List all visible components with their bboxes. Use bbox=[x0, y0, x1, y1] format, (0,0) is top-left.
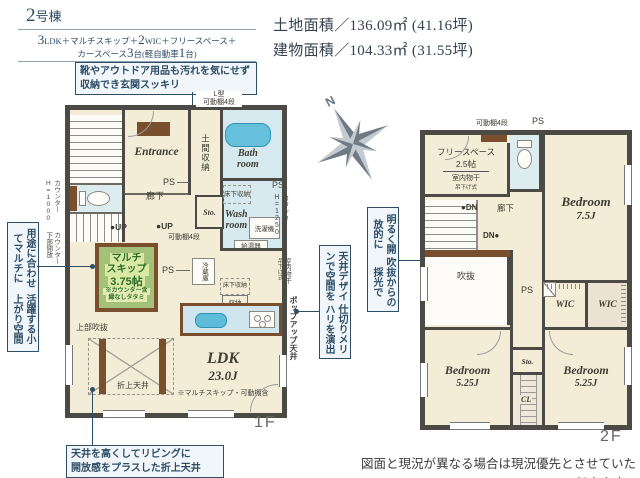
void-label: 吹抜 bbox=[455, 269, 477, 282]
l-shelf-line2: 可動棚4段 bbox=[196, 99, 242, 107]
callout-multi-use: 用途に合わせてマルチに 活躍する小上がり空間 bbox=[7, 222, 39, 352]
dn-label-1: ●DN bbox=[461, 203, 477, 212]
callout-coffered-line1: 天井を高くしてリビングに bbox=[71, 448, 219, 462]
bath-label-2: room bbox=[237, 159, 259, 170]
area-block: 土地面積／136.09㎡ (41.16坪) 建物面積／104.33㎡ (31.5… bbox=[273, 14, 473, 64]
shelf-2f bbox=[481, 135, 507, 142]
callout-daylight: 明るく開放的に 吹抜からの採光で bbox=[367, 207, 399, 312]
free-space-room: フリースペース 2.5帖 室内物干 吊下げ式 bbox=[425, 143, 510, 197]
wic-1: WIC bbox=[545, 283, 585, 327]
callout-coffered-line2: 開放感をプラスした折上天井 bbox=[71, 462, 219, 476]
underfloor-storage-2: 床下収納 bbox=[220, 278, 250, 295]
wall bbox=[70, 212, 122, 214]
window bbox=[624, 165, 632, 205]
window bbox=[420, 267, 428, 301]
window bbox=[65, 345, 73, 385]
compass-star bbox=[305, 89, 401, 198]
bath-label-1: Bath bbox=[237, 148, 259, 159]
multi-skip-label-1: マルチ bbox=[110, 253, 144, 265]
multi-skip-size: 3.75帖 bbox=[108, 276, 144, 289]
floor-plan-1f: Entrance 土間収納 Bath room Wash room 洗濯機 bbox=[65, 105, 287, 418]
closet-cl: CL bbox=[513, 375, 542, 425]
layout-line-2: カースペース3台(軽自動車1台) bbox=[14, 45, 260, 61]
ps-2f-label: PS bbox=[521, 285, 533, 295]
free-space-size: 2.5帖 bbox=[456, 158, 476, 170]
bath-room: Bath room bbox=[223, 110, 282, 178]
bedroom-3-label: Bedroom bbox=[563, 363, 608, 378]
counter-h1250-value: H=1250 bbox=[272, 194, 280, 256]
toilet-room-1f bbox=[70, 185, 122, 212]
counter-h1000-label: カウンター H=1000 bbox=[44, 180, 60, 230]
window bbox=[450, 422, 490, 430]
callout-multi-connector bbox=[37, 266, 92, 267]
multi-skip-note-2: 縁なしタタミ bbox=[106, 295, 146, 302]
wic-1-label: WIC bbox=[556, 300, 574, 310]
building-number-suffix: 号棟 bbox=[36, 9, 62, 24]
layout-text-5: 台) bbox=[185, 49, 196, 59]
ps-1f-upper-label: PS bbox=[163, 177, 175, 187]
counter-h1250-label: カウンター H=1250 bbox=[272, 194, 289, 256]
popup-ceiling-text: ポップアップ天井 bbox=[288, 296, 299, 366]
hallway-2f-label: 廊下 bbox=[497, 202, 514, 214]
storage-sto-2f: Sto. bbox=[513, 350, 542, 372]
shelf-2f-label: 可動棚4段 bbox=[476, 118, 508, 128]
bathtub-icon bbox=[225, 123, 271, 147]
wash-label-1: Wash bbox=[225, 209, 248, 220]
toilet-room-2f bbox=[510, 135, 542, 192]
popup-connector bbox=[299, 311, 319, 312]
counter-open-word: カウンター bbox=[52, 232, 60, 282]
ps-leader-line-2 bbox=[176, 270, 190, 271]
bedroom-2-size: 5.25J bbox=[456, 378, 479, 389]
underfloor-storage-2-label: 床下収納 bbox=[223, 283, 247, 290]
wash-room-label: Wash room bbox=[225, 209, 248, 231]
counter-h1000-word: カウンター bbox=[52, 180, 60, 230]
compass-north-label: N bbox=[323, 93, 338, 110]
callout-coffered-connector bbox=[92, 390, 93, 445]
toilet-tank-icon-2f bbox=[517, 140, 532, 148]
bedroom-3-size: 5.25J bbox=[575, 378, 598, 389]
multi-skip-label-2: スキップ bbox=[105, 264, 149, 276]
underfloor-storage-1-label: 床下収納 bbox=[224, 191, 250, 198]
toilet-bowl-icon bbox=[87, 191, 110, 206]
layout-text-4: 台(軽自動車 bbox=[133, 49, 178, 59]
ldk-size: 23.0J bbox=[177, 368, 269, 384]
building-number: 2号棟 bbox=[26, 5, 62, 27]
stairs-1f-upper bbox=[70, 115, 122, 183]
wic-2: WIC bbox=[588, 283, 627, 327]
bath-room-label: Bath room bbox=[237, 148, 259, 170]
ps-1f-lower-label: PS bbox=[162, 265, 174, 275]
callout-coffered-dot bbox=[90, 387, 95, 392]
hanger-rail bbox=[621, 285, 626, 325]
window bbox=[420, 363, 428, 397]
callout-coffered: 天井を高くしてリビングに 開放感をプラスした折上天井 bbox=[66, 445, 224, 478]
window bbox=[188, 410, 234, 418]
refrigerator: 冷蔵庫 bbox=[192, 258, 215, 285]
floor-plan-2f: フリースペース 2.5帖 室内物干 吊下げ式 Bedroom 7.5J ●DN … bbox=[420, 130, 632, 430]
compass-rose: N bbox=[305, 88, 401, 200]
upper-void-label: 上部吹抜 bbox=[76, 322, 108, 333]
kitchen-counter bbox=[180, 303, 282, 336]
doma-storage-room: 土間収納 bbox=[191, 114, 220, 192]
window bbox=[558, 422, 604, 430]
toilet-bowl-icon-2f bbox=[517, 149, 532, 169]
free-space-rule bbox=[443, 171, 489, 172]
hanger-rail bbox=[547, 284, 583, 289]
stove bbox=[249, 311, 275, 328]
l-shelf-label: L型 可動棚4段 bbox=[196, 91, 242, 107]
underfloor-storage-1: 床下収納 bbox=[223, 185, 251, 204]
callout-multi-dot bbox=[90, 264, 95, 269]
callout-multi-col2: 活躍する小上がり空間 bbox=[10, 290, 36, 348]
bedroom-1: Bedroom 7.5J bbox=[545, 135, 627, 280]
stove-burner bbox=[264, 315, 271, 322]
ldk-room: LDK 23.0J ※マルチスキップ・可動棚含 bbox=[177, 350, 269, 398]
callout-daylight-col1: 明るく開放的に bbox=[370, 211, 396, 256]
up-arrow-1: ●UP bbox=[110, 222, 127, 232]
counter-h1250-word: カウンター bbox=[280, 194, 288, 256]
dn-label-2: DN● bbox=[483, 231, 499, 240]
hanging-type-word: 吊下げ式 bbox=[276, 258, 283, 306]
window bbox=[103, 410, 145, 418]
l-shelf-line1: L型 bbox=[196, 91, 242, 99]
shelf-4tier-1f-label: 可動棚4段 bbox=[168, 232, 200, 242]
disclaimer: 図面と現況が異なる場合は現況優先とさせていただきます。 bbox=[352, 453, 636, 478]
sto-2f-label: Sto. bbox=[522, 357, 534, 366]
counter-open-value: 下部開放 bbox=[44, 232, 52, 282]
entrance-label: Entrance bbox=[134, 146, 178, 158]
popup-ceiling-label: ポップアップ天井 bbox=[288, 296, 299, 366]
storage-sto-1f: Sto. bbox=[195, 195, 224, 229]
building-number-digit: 2 bbox=[26, 5, 36, 26]
free-space-hanging: 吊下げ式 bbox=[455, 183, 477, 191]
toilet-tank-icon bbox=[79, 191, 86, 206]
coffered-ceiling-label: 折上天井 bbox=[115, 380, 151, 391]
counter-h1000-value: H=1000 bbox=[44, 180, 52, 230]
refrigerator-label: 冷蔵庫 bbox=[199, 262, 209, 282]
window bbox=[624, 347, 632, 385]
callout-ceiling-design: 天井デザインで空間を 仕切りメリハリを演出 bbox=[319, 245, 351, 359]
ps-right-label: PS bbox=[272, 180, 284, 190]
kitchen-sink bbox=[195, 313, 227, 328]
hallway-1f-label: 廊下 bbox=[146, 189, 164, 202]
wic-2-label: WIC bbox=[598, 300, 616, 310]
land-area: 土地面積／136.09㎡ (41.16坪) bbox=[273, 14, 473, 39]
header-rule-top bbox=[18, 29, 256, 30]
multi-skip-room: マルチ スキップ 3.75帖 ※カウンター含 縁なしタタミ bbox=[95, 243, 158, 312]
building-area: 建物面積／104.33㎡ (31.55坪) bbox=[273, 39, 473, 64]
beam bbox=[159, 339, 166, 394]
bedroom-1-size: 7.5J bbox=[576, 210, 595, 222]
stove-burner bbox=[259, 321, 266, 328]
wall bbox=[70, 183, 122, 185]
up-arrow-2: ●UP bbox=[156, 221, 173, 231]
void-edge-beam bbox=[425, 250, 510, 257]
callout-entrance-line2: 収納でき玄関スッキリ bbox=[80, 79, 252, 93]
callout-daylight-col2: 吹抜からの採光で bbox=[370, 256, 396, 308]
closet-cl-label: CL bbox=[520, 395, 532, 404]
beam bbox=[99, 339, 106, 394]
bedroom-2-label: Bedroom bbox=[445, 363, 490, 378]
callout-entrance-line1: 靴やアウトドア用品も汚れを気にせず bbox=[80, 65, 252, 79]
bedroom-1-label: Bedroom bbox=[561, 194, 610, 210]
sto-1f-label: Sto. bbox=[203, 208, 216, 217]
callout-ceiling-col1: 天井デザインで空間を bbox=[322, 249, 348, 302]
counter-cabinet-left bbox=[70, 186, 77, 211]
window bbox=[279, 355, 287, 387]
floor-1f-label: 1F bbox=[254, 414, 277, 432]
callout-ceiling-col2: 仕切りメリハリを演出 bbox=[322, 302, 348, 355]
ps-leader-line bbox=[177, 182, 189, 183]
wash-label-2: room bbox=[225, 220, 248, 231]
counter-open-label: カウンター 下部開放 bbox=[44, 232, 60, 282]
flyer-canvas: 2号棟 3LDK＋マルチスキップ＋2WIC＋フリースペース＋ カースペース3台(… bbox=[0, 0, 640, 478]
callout-multi-col1: 用途に合わせてマルチに bbox=[10, 226, 36, 290]
layout-text-3: カースペース bbox=[77, 49, 127, 59]
ps-2f-top-label: PS bbox=[532, 116, 544, 126]
free-space-drying: 室内物干 bbox=[452, 173, 480, 183]
floor-2f-label: 2F bbox=[600, 428, 623, 446]
coffered-ceiling-zone: 折上天井 bbox=[88, 338, 174, 395]
ldk-label: LDK bbox=[177, 350, 269, 368]
void-room: 吹抜 bbox=[425, 257, 510, 325]
doma-storage-label: 土間収納 bbox=[200, 134, 212, 172]
